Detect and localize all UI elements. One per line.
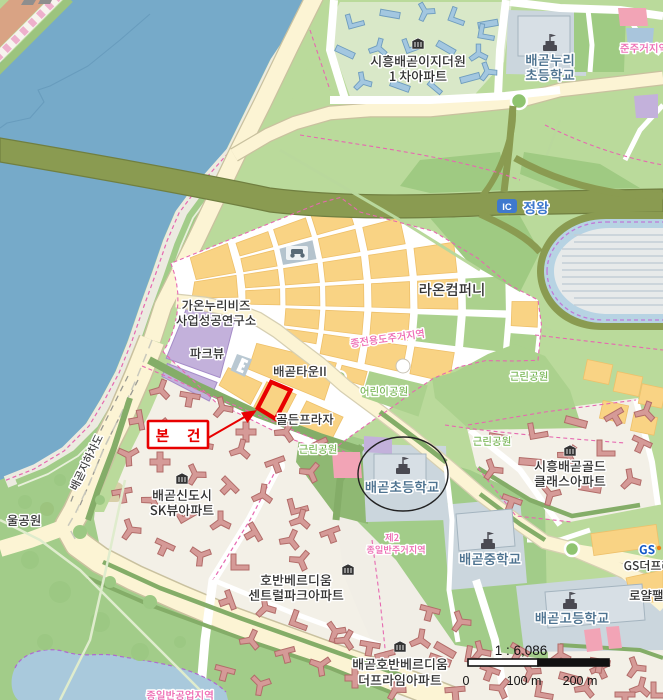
svg-text:100 m: 100 m	[507, 674, 542, 688]
svg-text:0: 0	[463, 674, 470, 688]
svg-text:1 : 6,086: 1 : 6,086	[495, 643, 548, 658]
svg-text:IC: IC	[502, 202, 512, 213]
svg-text:200 m: 200 m	[563, 674, 598, 688]
